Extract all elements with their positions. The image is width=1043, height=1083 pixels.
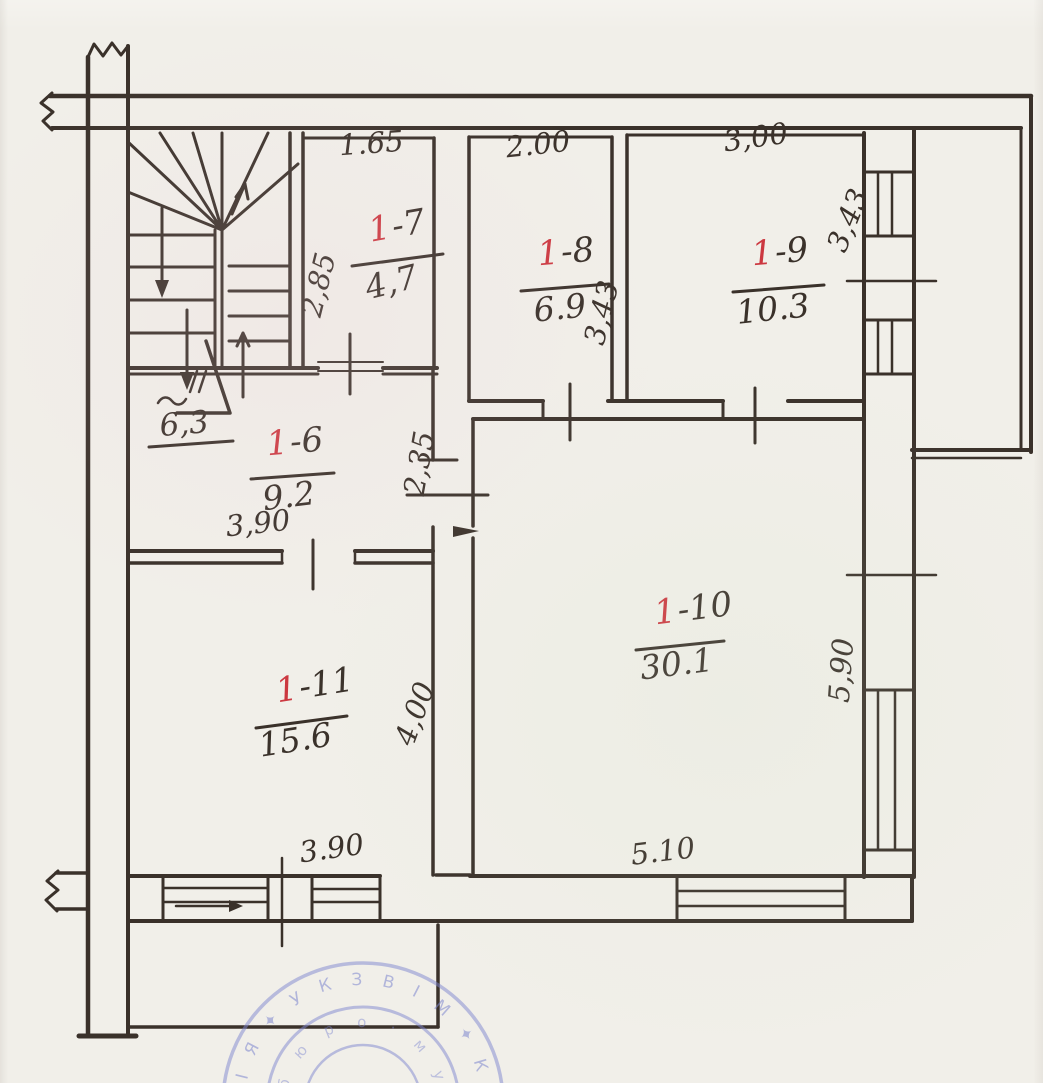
room-1-6-number-suffix: -6 [288, 420, 324, 463]
stair-area-label: 6,3 [158, 404, 210, 444]
window-bottom-right [677, 876, 845, 921]
window-bottom-middle [312, 876, 380, 921]
staircase [128, 133, 298, 447]
dim-5-90: 5,90 [822, 637, 860, 704]
room-label-1-6: 1 -6 [265, 420, 325, 465]
room-label-1-7: 1 -7 [365, 201, 428, 250]
dim-5-10: 5.10 [629, 830, 697, 872]
top-wall-break-zigzag [41, 93, 53, 130]
dim-2-85: 2,85 [294, 249, 343, 321]
window-right-lower [864, 690, 914, 850]
scanned-floor-plan-page: 1.65 2,85 2.00 3,43 3,00 3,43 2,35 3,90 … [0, 0, 1043, 1083]
room-label-1-11: 1 -11 [273, 659, 357, 711]
dim-2-35: 2,35 [397, 429, 442, 499]
dim-1-65: 1.65 [338, 124, 405, 162]
stair-winder-fan [128, 133, 298, 230]
room-1-6-number-red: 1 [265, 423, 290, 465]
door-swing-marker [453, 526, 479, 537]
room-1-8-number-suffix: -8 [559, 230, 595, 273]
room-1-8-area: 6.9 [532, 285, 588, 329]
wall-between-1-8-1-9 [612, 135, 627, 401]
dim-3-00: 3,00 [721, 116, 790, 159]
stair-arrow-up2 [237, 333, 249, 397]
stair-treads-left [128, 235, 215, 333]
window-bottom-left [163, 876, 268, 921]
left-bottom-stub-wall [56, 873, 88, 909]
room-label-1-9: 1 -9 [750, 230, 810, 275]
room-1-9-number-suffix: -9 [773, 230, 809, 273]
room-1-8-number-red: 1 [536, 233, 561, 275]
door-jambs-1-11 [282, 551, 355, 563]
room-1-6-area: 9.2 [260, 473, 317, 518]
room-label-1-10: 1 -10 [652, 584, 735, 633]
room-1-7-number-suffix: -7 [389, 201, 429, 246]
floor-plan-drawing: 1.65 2,85 2.00 3,43 3,00 3,43 2,35 3,90 … [0, 0, 1043, 1083]
dim-2-00: 2.00 [503, 124, 572, 165]
dim-3-90-b: 3.90 [297, 827, 366, 870]
room-1-9-area: 10.3 [734, 285, 811, 331]
stair-approx-tilde [158, 397, 186, 404]
stair-treads-right [229, 266, 290, 341]
stamp-inner-circle [305, 1045, 421, 1083]
room-1-9-number-red: 1 [750, 233, 775, 275]
room-1-11-area: 15.6 [256, 715, 335, 765]
left-wall-top-cap [88, 43, 128, 57]
dimension-labels: 1.65 2,85 2.00 3,43 3,00 3,43 2,35 3,90 … [224, 116, 876, 872]
room-1-10-area: 30.1 [638, 640, 716, 688]
room-1-10-number-red: 1 [652, 591, 678, 633]
room-label-1-8: 1 -8 [536, 230, 596, 275]
stair-arrow-down-head [155, 280, 169, 298]
room-labels: 1 -7 4,7 1 -8 6.9 1 -9 10.3 1 -6 9.2 1 -… [158, 201, 824, 764]
room-1-10-number-suffix: -10 [675, 584, 734, 630]
stamp-mid-text: б ю р о · м у [274, 1013, 451, 1083]
stair-stringer [215, 230, 222, 368]
room-1-11-number-suffix: -11 [296, 659, 356, 707]
window-right-middle [864, 320, 914, 374]
dim-3-43-b: 3,43 [820, 184, 876, 257]
left-bottom-break-zigzag [46, 871, 58, 911]
